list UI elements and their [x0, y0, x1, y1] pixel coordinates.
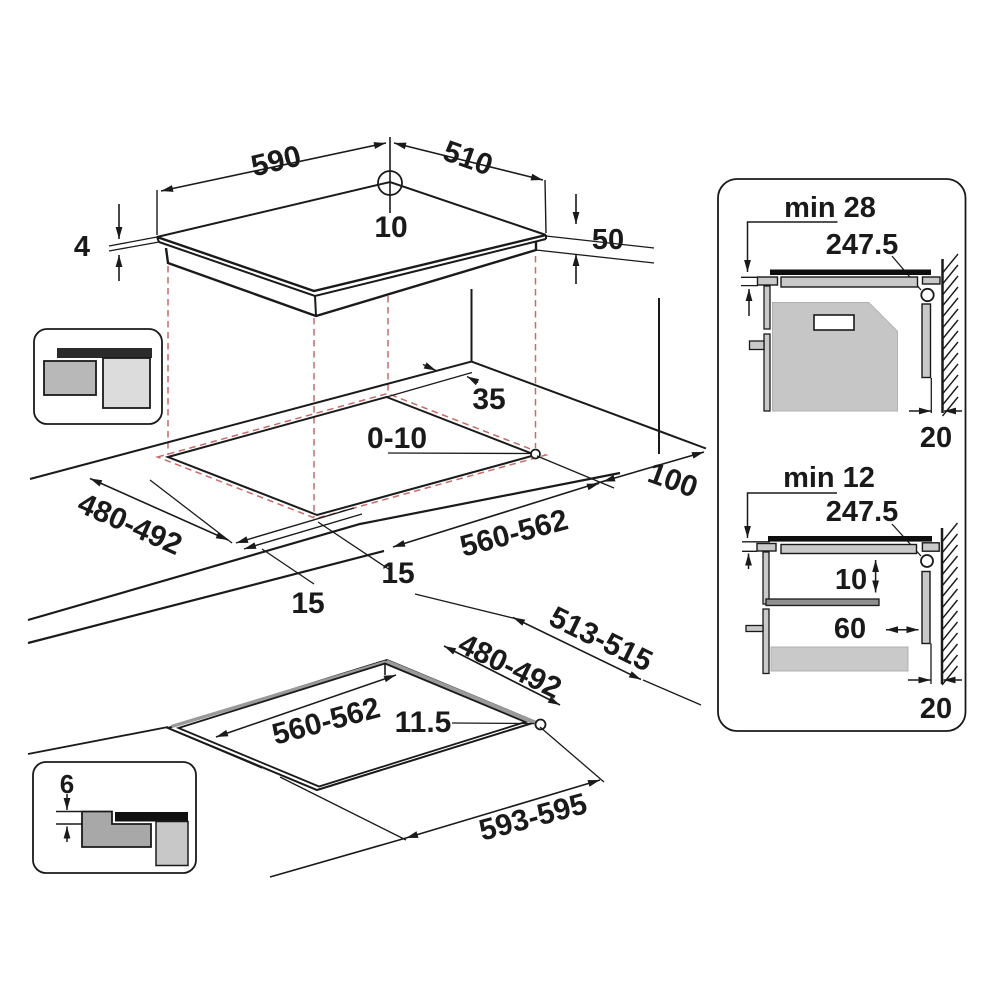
svg-text:247.5: 247.5 [826, 496, 899, 528]
svg-text:20: 20 [920, 693, 952, 725]
svg-text:35: 35 [472, 383, 505, 416]
svg-text:min 28: min 28 [784, 192, 876, 224]
svg-text:0-10: 0-10 [367, 422, 427, 455]
svg-text:15: 15 [291, 587, 324, 620]
svg-text:50: 50 [592, 224, 624, 256]
svg-text:10: 10 [374, 211, 407, 244]
svg-text:4: 4 [74, 231, 90, 263]
svg-text:60: 60 [834, 613, 866, 645]
svg-text:11.5: 11.5 [395, 706, 452, 739]
svg-text:247.5: 247.5 [826, 229, 899, 261]
svg-text:min 12: min 12 [783, 462, 875, 494]
svg-text:20: 20 [920, 422, 952, 454]
svg-text:15: 15 [381, 557, 414, 590]
svg-text:10: 10 [835, 564, 867, 596]
